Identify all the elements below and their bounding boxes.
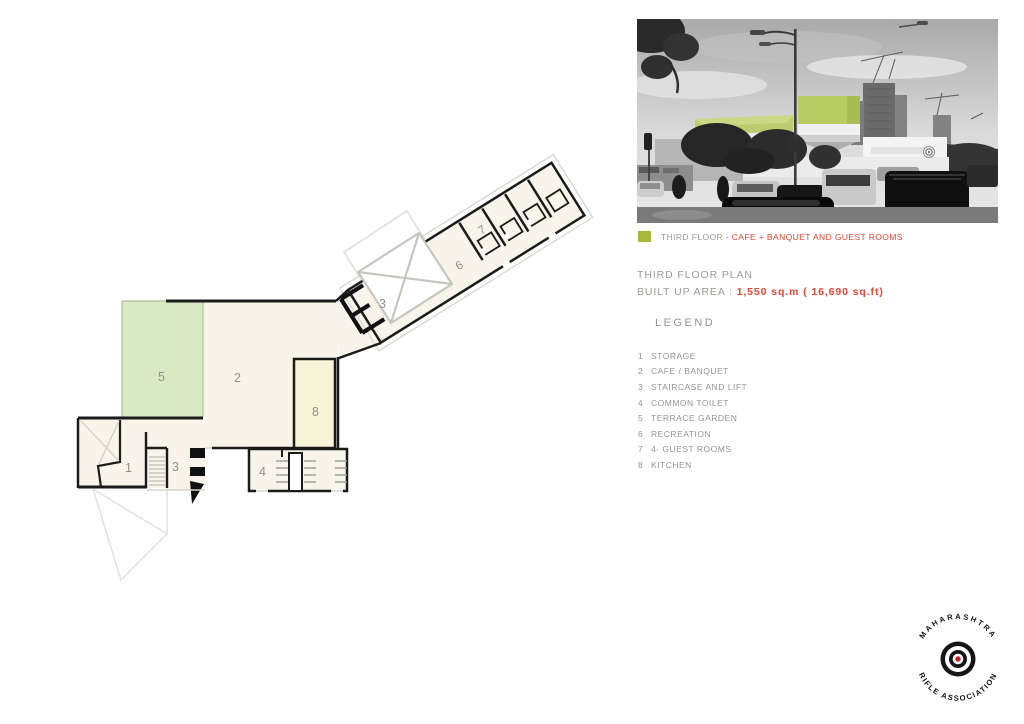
- legend-item: 4 COMMON TOILET: [638, 395, 747, 411]
- presentation-sheet: 6 7: [0, 0, 1024, 724]
- room-label-cafe: 2: [234, 371, 241, 385]
- legend-item: 7 4- GUEST ROOMS: [638, 442, 747, 458]
- association-logo: MAHARASHTRA RIFLE ASSOCIATION: [905, 603, 1011, 713]
- legend-item: 8 KITCHEN: [638, 457, 747, 473]
- bullseye-icon: [941, 642, 976, 677]
- service-core: [190, 448, 205, 504]
- photo-road-patch: [652, 210, 712, 220]
- room-label-stair-a: 3: [172, 460, 179, 474]
- logo-top-text: MAHARASHTRA: [917, 612, 998, 640]
- room-label-stair-b: 3: [379, 297, 386, 311]
- caption-description: - CAFE + BANQUET AND GUEST ROOMS: [726, 232, 903, 242]
- legend-item: 3 STAIRCASE AND LIFT: [638, 379, 747, 395]
- legend: LEGEND 1 STORAGE 2 CAFE / BANQUET 3 STAI…: [638, 317, 747, 473]
- area-value: 1,550 sq.m ( 16,690 sq.ft): [737, 286, 884, 298]
- photo-wall-logo: [924, 147, 935, 158]
- legend-title: LEGEND: [655, 317, 747, 329]
- legend-item: 6 RECREATION: [638, 426, 747, 442]
- title-block: THIRD FLOOR PLAN BUILT UP AREA : 1,550 s…: [637, 267, 884, 301]
- legend-item: 5 TERRACE GARDEN: [638, 410, 747, 426]
- caption-floor-label: THIRD FLOOR: [661, 232, 723, 242]
- room-label-kitchen: 8: [312, 405, 319, 419]
- floor-caption: THIRD FLOOR - CAFE + BANQUET AND GUEST R…: [638, 231, 903, 242]
- room-label-storage: 1: [125, 461, 132, 475]
- plan-title: THIRD FLOOR PLAN: [637, 267, 884, 284]
- room-label-terrace: 5: [158, 370, 165, 384]
- site-photo: [637, 19, 998, 223]
- kitchen-room: [294, 359, 335, 448]
- legend-item: 2 CAFE / BANQUET: [638, 364, 747, 380]
- floor-color-swatch: [638, 231, 651, 242]
- built-up-area: BUILT UP AREA : 1,550 sq.m ( 16,690 sq.f…: [637, 284, 884, 301]
- legend-item: 1 STORAGE: [638, 348, 747, 364]
- floor-plan-drawing: 6 7: [60, 140, 620, 600]
- area-label: BUILT UP AREA :: [637, 286, 737, 298]
- room-label-toilet: 4: [259, 465, 266, 479]
- svg-text:MAHARASHTRA: MAHARASHTRA: [917, 612, 998, 640]
